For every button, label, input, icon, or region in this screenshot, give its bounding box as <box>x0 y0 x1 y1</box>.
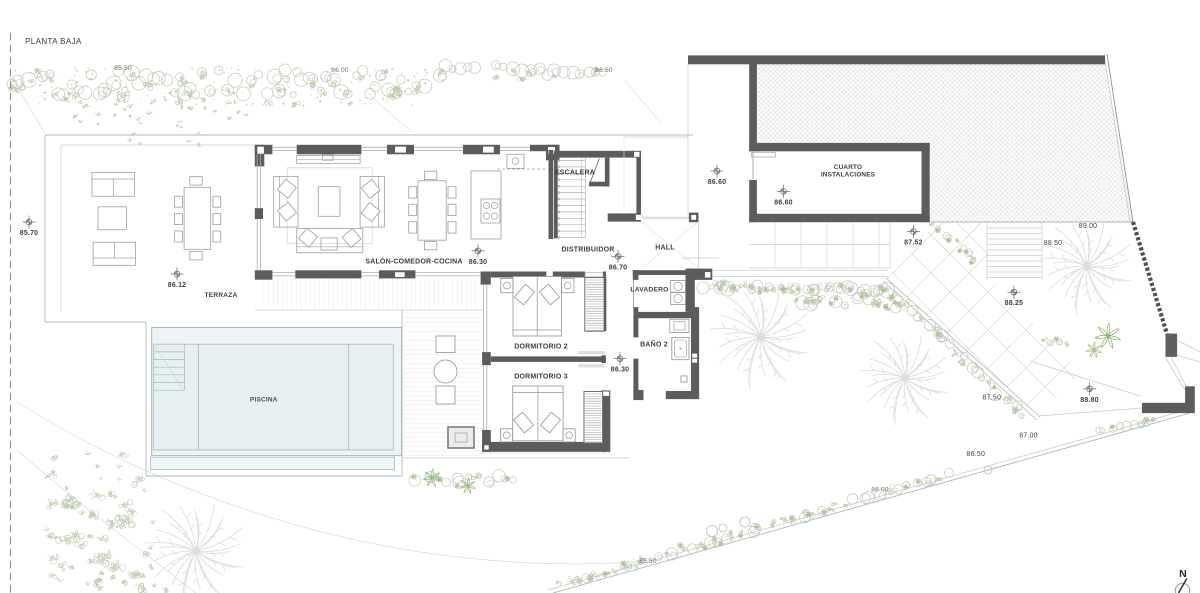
svg-text:86.50: 86.50 <box>967 451 986 458</box>
svg-text:86.50: 86.50 <box>595 67 613 74</box>
svg-text:86.60: 86.60 <box>774 199 793 206</box>
svg-text:CUARTO: CUARTO <box>834 164 862 171</box>
svg-text:85.50: 85.50 <box>114 65 132 72</box>
svg-text:86.60: 86.60 <box>708 179 727 186</box>
svg-text:86.30: 86.30 <box>469 259 488 266</box>
svg-text:86.00: 86.00 <box>331 67 349 74</box>
svg-text:SALÓN-COMEDOR-COCINA: SALÓN-COMEDOR-COCINA <box>365 257 462 266</box>
svg-text:TERRAZA: TERRAZA <box>205 292 238 299</box>
svg-text:87.00: 87.00 <box>1019 433 1038 440</box>
svg-text:INSTALACIONES: INSTALACIONES <box>821 172 876 179</box>
svg-text:86.30: 86.30 <box>611 367 630 374</box>
svg-text:ESCALERA: ESCALERA <box>555 170 595 177</box>
svg-text:85.50: 85.50 <box>639 558 657 565</box>
svg-text:85.70: 85.70 <box>20 230 39 237</box>
svg-text:86.70: 86.70 <box>609 264 628 271</box>
svg-text:PISCINA: PISCINA <box>250 397 278 404</box>
svg-text:LAVADERO: LAVADERO <box>630 287 668 294</box>
svg-text:DISTRIBUIDOR: DISTRIBUIDOR <box>562 247 615 254</box>
svg-text:DORMITORIO 2: DORMITORIO 2 <box>514 344 568 351</box>
svg-text:PLANTA BAJA: PLANTA BAJA <box>25 37 82 46</box>
svg-text:BAÑO 2: BAÑO 2 <box>640 340 668 349</box>
svg-text:86.12: 86.12 <box>168 282 187 289</box>
svg-text:89.00: 89.00 <box>1079 223 1098 230</box>
svg-text:88.25: 88.25 <box>1005 300 1024 307</box>
svg-text:HALL: HALL <box>655 245 675 252</box>
svg-text:N: N <box>1179 568 1187 580</box>
svg-text:86.00: 86.00 <box>871 487 889 494</box>
svg-text:87.50: 87.50 <box>983 395 1002 402</box>
svg-text:88.80: 88.80 <box>1080 397 1099 404</box>
svg-text:87.52: 87.52 <box>904 240 923 247</box>
svg-text:DORMITORIO 3: DORMITORIO 3 <box>514 374 568 381</box>
svg-text:88.50: 88.50 <box>1044 240 1063 247</box>
